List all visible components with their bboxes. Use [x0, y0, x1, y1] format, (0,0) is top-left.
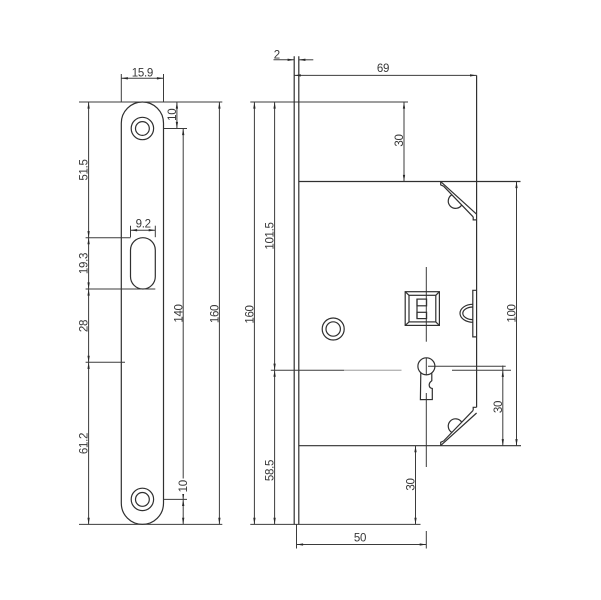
svg-text:51.5: 51.5	[79, 159, 91, 180]
svg-text:160: 160	[210, 305, 222, 323]
svg-text:15.9: 15.9	[132, 67, 153, 79]
svg-text:140: 140	[173, 304, 185, 322]
svg-text:28: 28	[79, 320, 91, 332]
svg-text:30: 30	[394, 134, 406, 146]
svg-text:10: 10	[178, 480, 190, 492]
svg-text:2: 2	[274, 49, 280, 61]
svg-text:9.2: 9.2	[136, 219, 151, 231]
svg-text:69: 69	[377, 63, 389, 75]
svg-text:50: 50	[354, 533, 366, 545]
svg-text:19.3: 19.3	[79, 253, 91, 274]
svg-text:58.5: 58.5	[265, 460, 277, 481]
svg-text:10: 10	[167, 109, 179, 121]
svg-text:30: 30	[406, 478, 418, 490]
svg-text:30: 30	[493, 401, 505, 413]
svg-text:100: 100	[507, 304, 519, 322]
svg-text:101.5: 101.5	[265, 222, 277, 249]
svg-text:61.2: 61.2	[79, 433, 91, 454]
svg-text:160: 160	[245, 305, 257, 323]
